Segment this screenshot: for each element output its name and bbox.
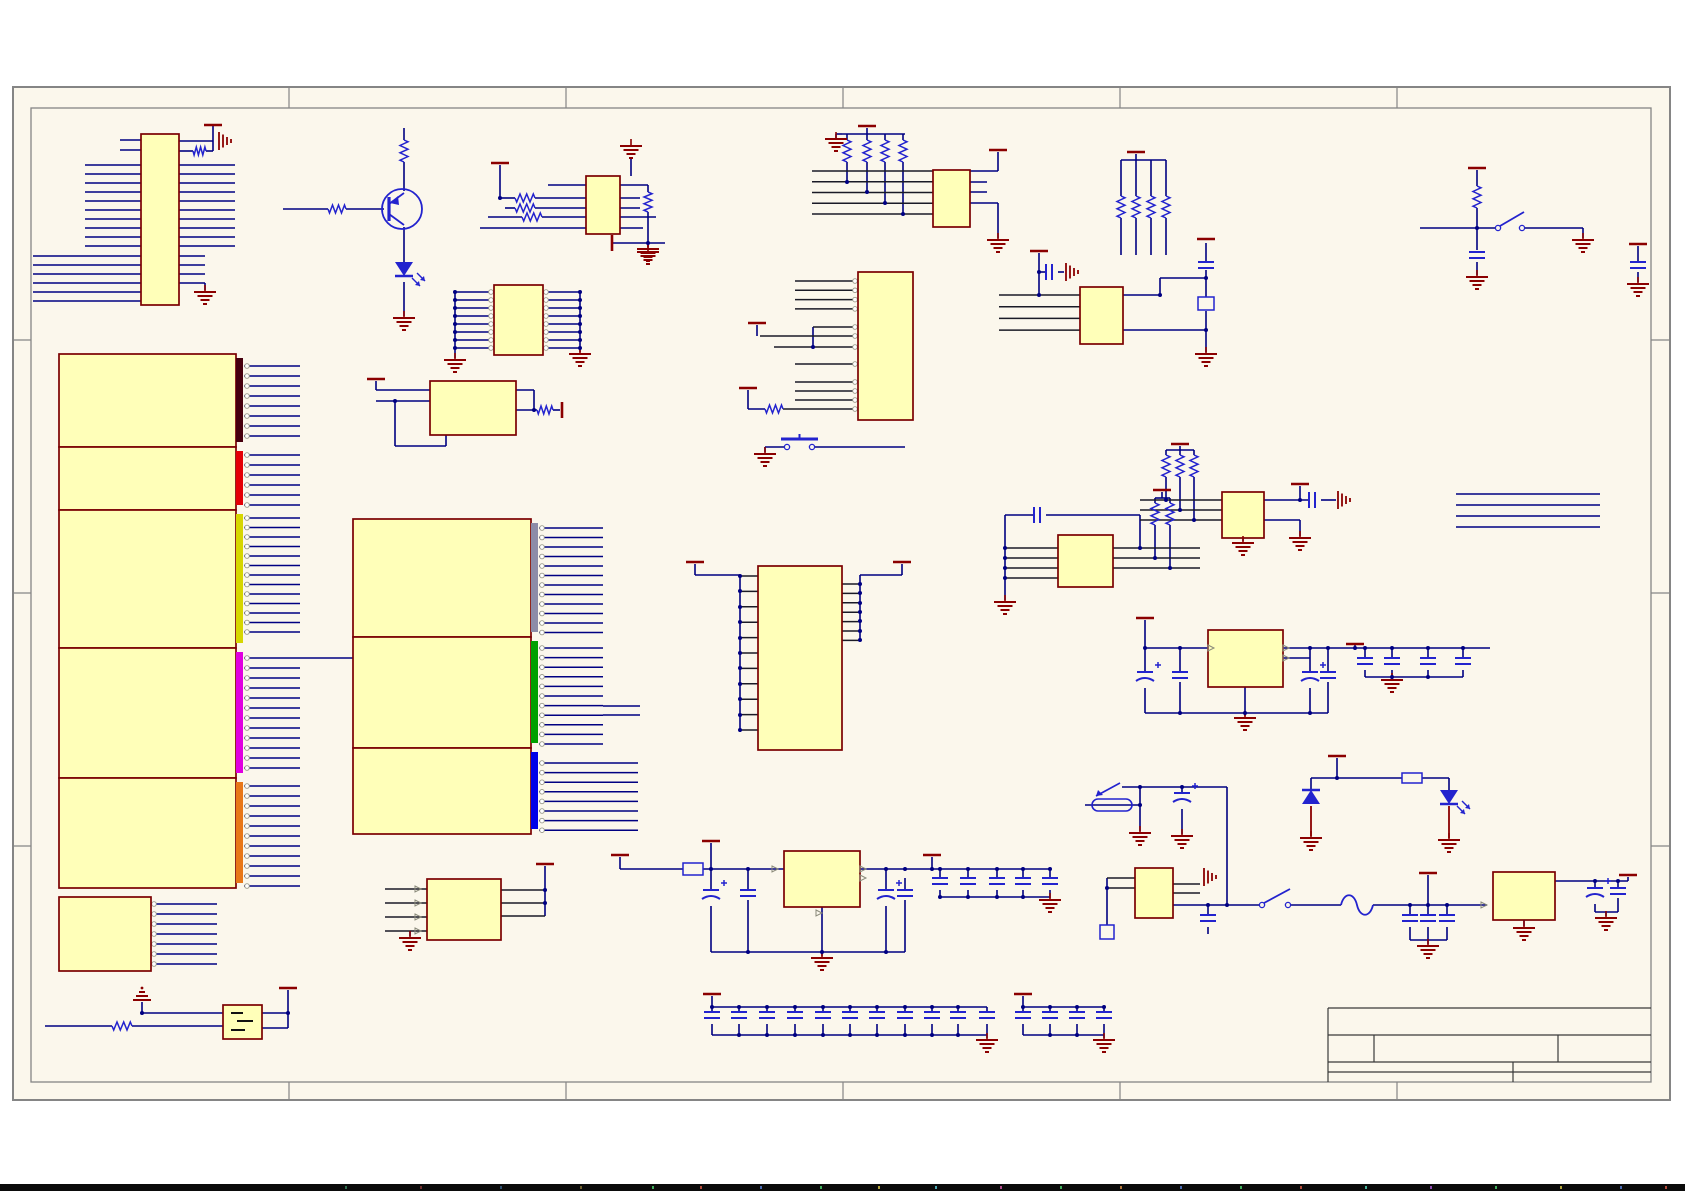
ic-small-1[interactable] <box>586 176 620 234</box>
ic-small-4[interactable] <box>1222 492 1264 538</box>
ic-top-left[interactable] <box>141 134 179 305</box>
stack-left-2[interactable] <box>59 447 243 510</box>
stack-left-3[interactable] <box>59 510 243 648</box>
ic-bottom-right[interactable] <box>1493 872 1555 920</box>
stack-left-4[interactable] <box>59 648 243 778</box>
stack-left-5[interactable] <box>59 778 243 888</box>
pin-header-1[interactable] <box>494 285 543 355</box>
dcdc-small[interactable] <box>1135 868 1173 918</box>
stack-left-1[interactable] <box>59 354 243 447</box>
ic-small-2[interactable] <box>933 170 970 227</box>
ic-mid-right[interactable] <box>858 272 913 420</box>
crystal-box[interactable] <box>223 1005 262 1039</box>
regulator-2[interactable] <box>1208 630 1283 687</box>
taskbar-strip <box>0 1184 1685 1191</box>
stack-mid-3[interactable] <box>353 748 538 834</box>
schematic-canvas <box>0 0 1685 1191</box>
opto-2[interactable] <box>427 879 501 940</box>
ic-small-3[interactable] <box>1058 535 1113 587</box>
ic-center[interactable] <box>758 566 842 750</box>
regulator-1[interactable] <box>784 851 860 907</box>
schematic-sheet <box>0 0 1685 1191</box>
opto-1[interactable] <box>430 381 516 435</box>
stack-mid-2[interactable] <box>353 637 538 748</box>
connector-small[interactable] <box>59 897 151 971</box>
ic-rtc[interactable] <box>1080 287 1123 344</box>
stack-mid-1[interactable] <box>353 519 538 637</box>
